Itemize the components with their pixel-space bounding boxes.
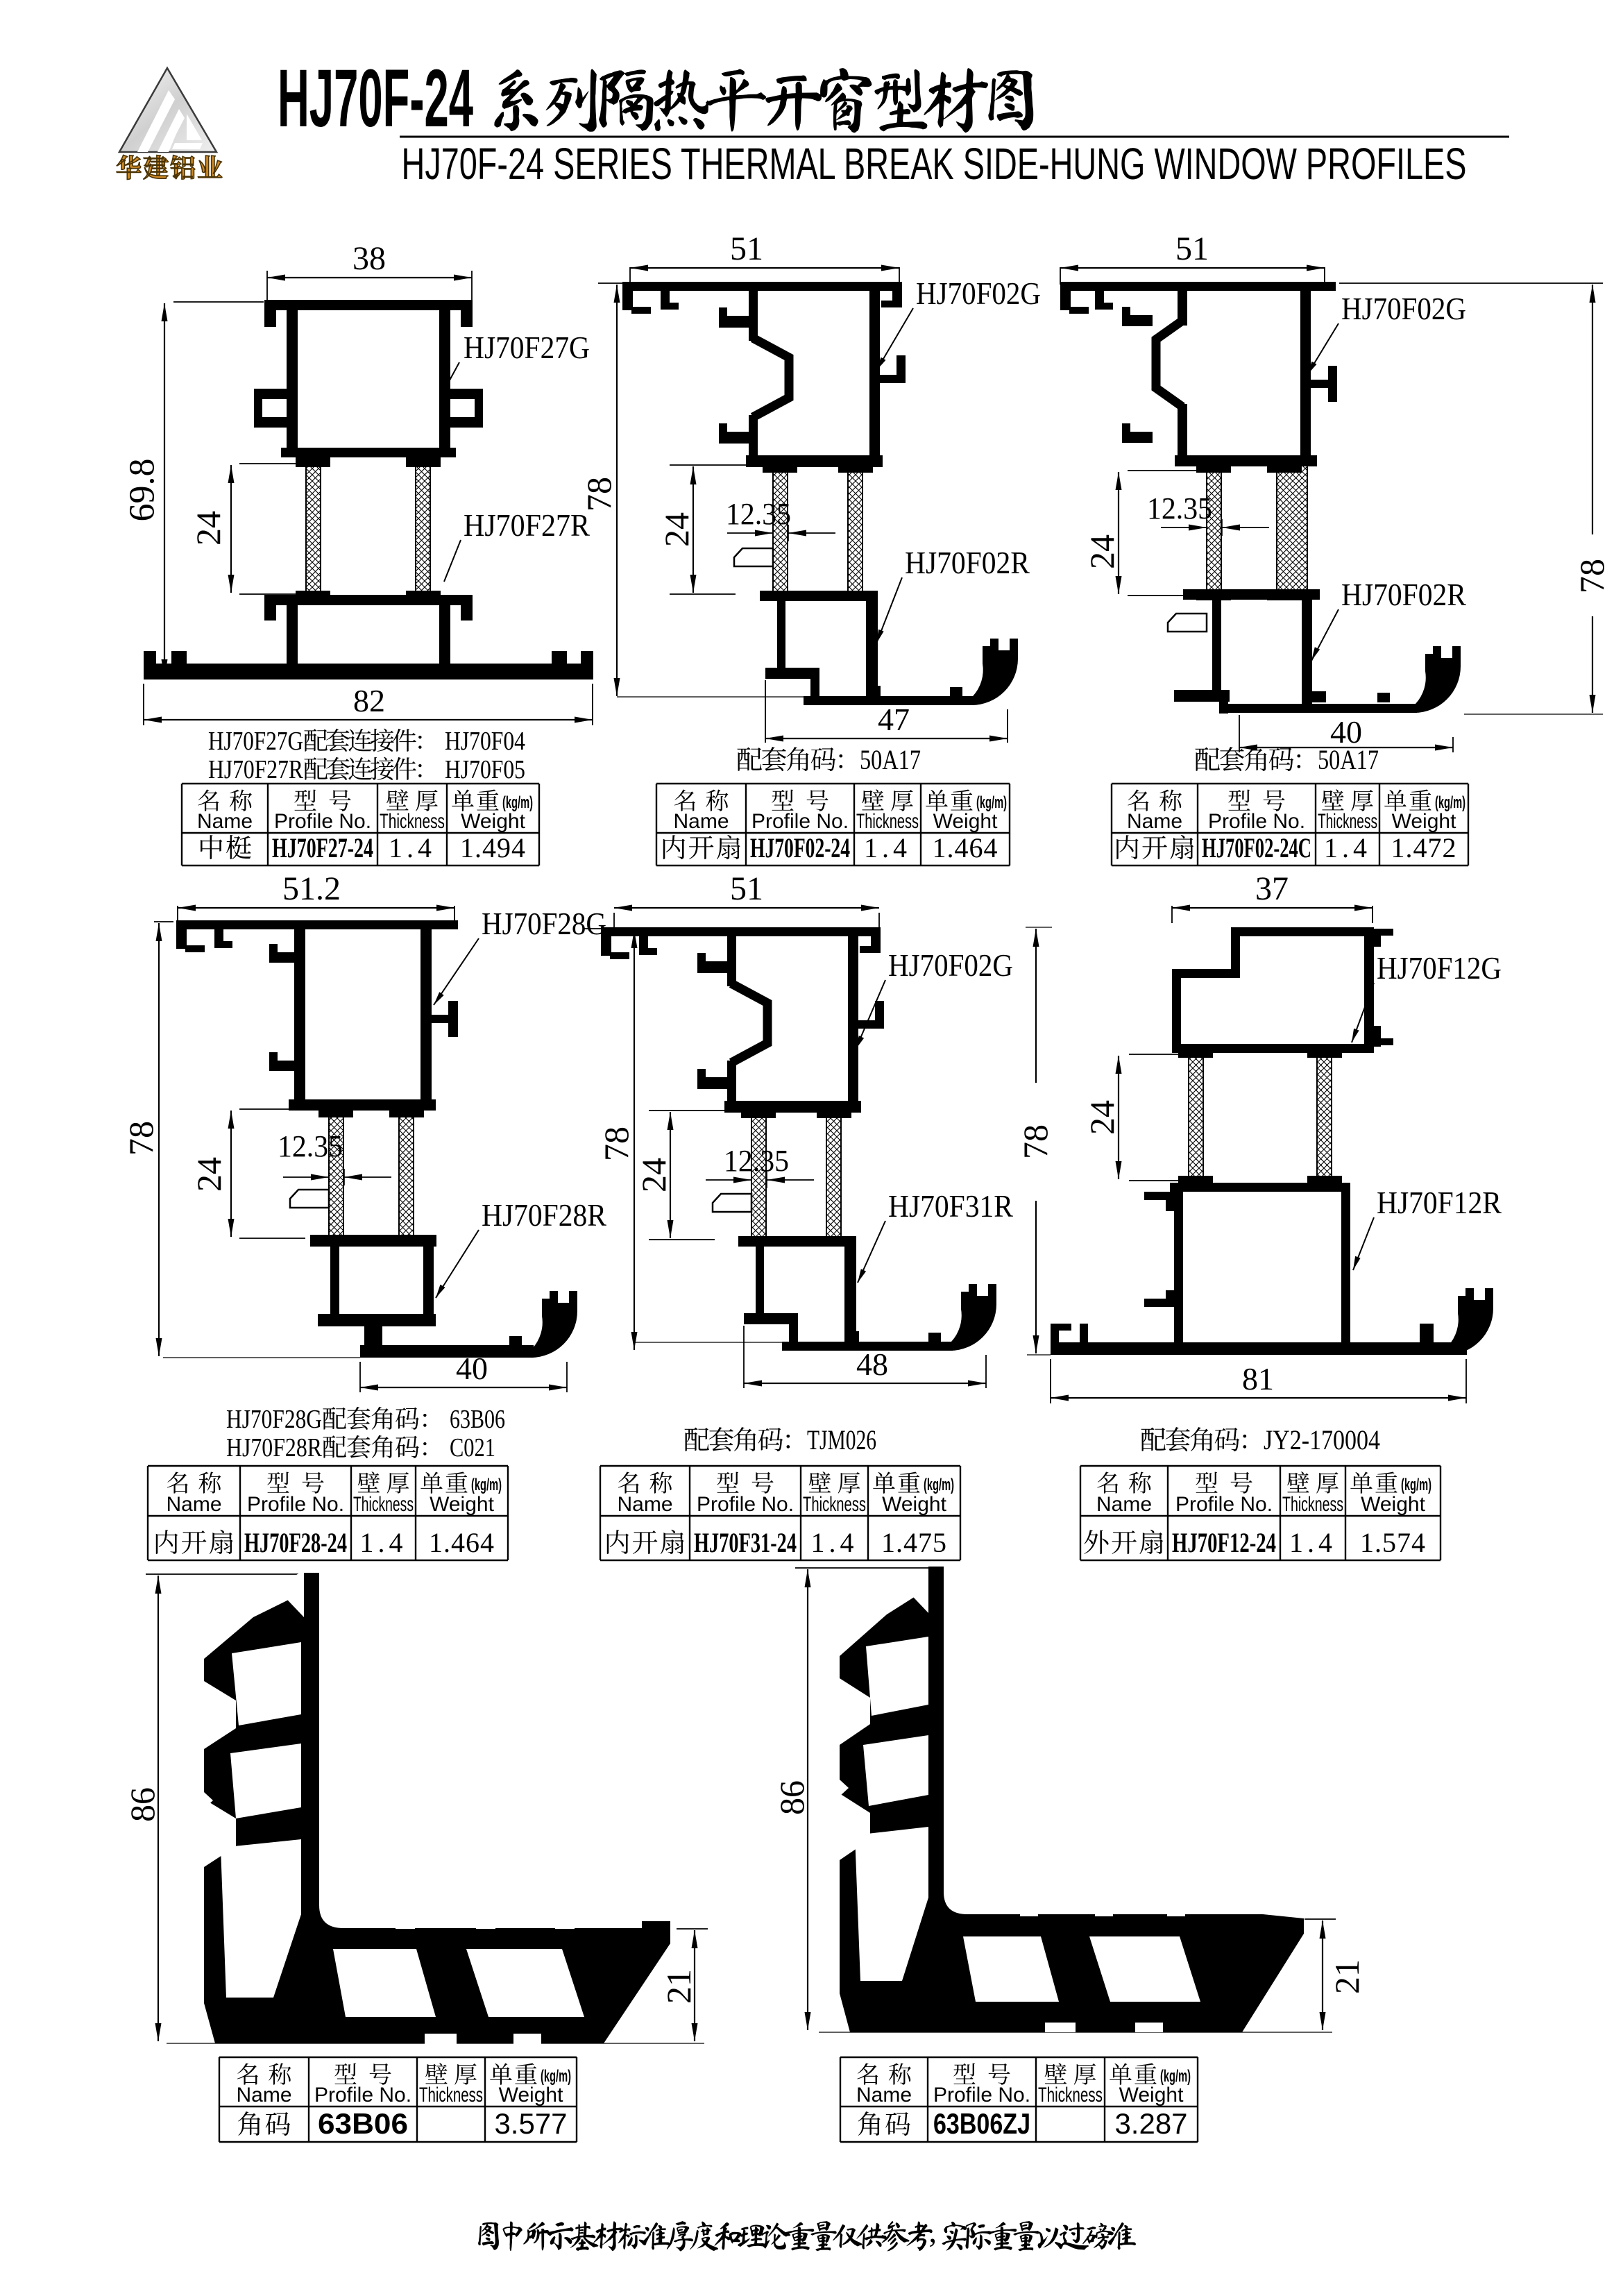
svg-text:HJ70F04: HJ70F04 [445, 727, 525, 756]
svg-text:Profile No.: Profile No. [751, 810, 849, 833]
svg-text:HJ70F12G: HJ70F12G [1377, 950, 1502, 986]
svg-text:82: 82 [353, 683, 385, 718]
svg-text:(kg/m): (kg/m) [976, 793, 1007, 812]
svg-text:Thickness: Thickness [1282, 1493, 1343, 1516]
svg-text:24: 24 [657, 512, 696, 547]
svg-text:(kg/m): (kg/m) [1160, 2067, 1191, 2086]
svg-text:Profile No.: Profile No. [247, 1493, 344, 1516]
svg-text:TJM026: TJM026 [807, 1424, 876, 1455]
svg-text:Name: Name [236, 2084, 291, 2107]
svg-text:Thickness: Thickness [419, 2084, 483, 2107]
svg-text:78: 78 [579, 477, 618, 512]
svg-text:1.464: 1.464 [429, 1527, 495, 1558]
svg-text:HJ70F02-24C: HJ70F02-24C [1202, 832, 1311, 863]
svg-text:1.4: 1.4 [1289, 1527, 1336, 1558]
svg-text:Profile No.: Profile No. [697, 1493, 794, 1516]
svg-text:Weight: Weight [461, 810, 525, 833]
svg-text:78: 78 [597, 1126, 636, 1161]
svg-text:HJ70F27G: HJ70F27G [208, 727, 303, 756]
svg-text:Weight: Weight [1119, 2084, 1184, 2107]
svg-text:,: , [929, 2213, 937, 2249]
svg-text:1.574: 1.574 [1360, 1527, 1426, 1558]
svg-text:Profile No.: Profile No. [314, 2084, 411, 2107]
svg-text:HJ70F27-24: HJ70F27-24 [272, 832, 373, 863]
svg-text:21: 21 [1327, 1959, 1366, 1994]
svg-text:24: 24 [1082, 1100, 1121, 1135]
svg-text:Weight: Weight [882, 1493, 946, 1516]
svg-text:HJ70F02G: HJ70F02G [916, 276, 1041, 311]
svg-text:38: 38 [352, 240, 386, 277]
svg-text:63B06: 63B06 [450, 1405, 505, 1434]
svg-text:1.472: 1.472 [1391, 832, 1457, 863]
svg-text:Weight: Weight [933, 810, 998, 833]
svg-text:JY2-170004: JY2-170004 [1264, 1424, 1380, 1455]
svg-text:51: 51 [730, 230, 763, 267]
svg-text:24: 24 [189, 511, 228, 546]
svg-text:3.577: 3.577 [494, 2107, 567, 2140]
svg-text:63B06: 63B06 [318, 2107, 408, 2140]
svg-text:C021: C021 [450, 1433, 495, 1462]
svg-text:HJ70F02G: HJ70F02G [1341, 291, 1466, 326]
svg-text:86: 86 [123, 1787, 162, 1822]
svg-text:Weight: Weight [1392, 810, 1456, 833]
svg-text:Thickness: Thickness [856, 810, 919, 833]
svg-text:78: 78 [121, 1121, 160, 1156]
svg-text:Profile No.: Profile No. [274, 810, 371, 833]
svg-text:HJ70F02R: HJ70F02R [905, 545, 1030, 580]
svg-text:40: 40 [456, 1351, 488, 1386]
svg-text:1.475: 1.475 [881, 1527, 947, 1558]
svg-text:51: 51 [1175, 230, 1209, 267]
svg-text:(kg/m): (kg/m) [1401, 1476, 1431, 1494]
svg-text:24: 24 [634, 1158, 673, 1192]
svg-text:HJ70F27R: HJ70F27R [208, 755, 304, 784]
svg-text:1.4: 1.4 [360, 1527, 407, 1558]
svg-text:51.2: 51.2 [282, 870, 341, 907]
svg-text:48: 48 [856, 1347, 888, 1382]
svg-text:(kg/m): (kg/m) [502, 793, 533, 812]
svg-text:21: 21 [659, 1969, 698, 2004]
svg-text:1.494: 1.494 [460, 832, 526, 863]
svg-text:Thickness: Thickness [1038, 2084, 1103, 2107]
svg-text:HJ70F27G: HJ70F27G [464, 330, 590, 365]
svg-text:24: 24 [1082, 534, 1121, 569]
svg-text:HJ70F28G: HJ70F28G [226, 1405, 322, 1434]
svg-text:Profile No.: Profile No. [1208, 810, 1305, 833]
svg-text:78: 78 [1572, 559, 1611, 593]
svg-text:47: 47 [878, 702, 910, 737]
svg-text:81: 81 [1242, 1361, 1274, 1396]
svg-text:Name: Name [617, 1493, 672, 1516]
svg-text:(kg/m): (kg/m) [541, 2067, 571, 2086]
svg-text:HJ70F02R: HJ70F02R [1341, 577, 1466, 612]
svg-text:HJ70F28R: HJ70F28R [482, 1197, 606, 1233]
svg-text:Profile No.: Profile No. [1175, 1493, 1273, 1516]
svg-text:50A17: 50A17 [860, 744, 921, 775]
svg-text:(kg/m): (kg/m) [1435, 793, 1465, 812]
svg-text:HJ70F02-24: HJ70F02-24 [750, 832, 850, 863]
svg-text:63B06ZJ: 63B06ZJ [933, 2107, 1030, 2140]
svg-text:HJ70F12-24: HJ70F12-24 [1172, 1527, 1276, 1558]
svg-text:HJ70F12R: HJ70F12R [1377, 1185, 1502, 1220]
svg-text:86: 86 [772, 1780, 811, 1815]
svg-text:69.8: 69.8 [123, 459, 162, 522]
svg-text:1.4: 1.4 [811, 1527, 858, 1558]
svg-text:Thickness: Thickness [353, 1493, 414, 1516]
svg-text:Name: Name [197, 810, 253, 833]
svg-text:1.4: 1.4 [1324, 832, 1371, 863]
svg-text:Name: Name [856, 2084, 912, 2107]
svg-text:1.4: 1.4 [864, 832, 911, 863]
svg-text:HJ70F05: HJ70F05 [445, 755, 525, 784]
svg-text:12.35: 12.35 [1147, 491, 1212, 525]
svg-text:Weight: Weight [499, 2084, 563, 2107]
svg-text:Thickness: Thickness [380, 810, 445, 833]
svg-text:1.464: 1.464 [933, 832, 999, 863]
svg-text:Profile No.: Profile No. [933, 2084, 1030, 2107]
svg-text:(kg/m): (kg/m) [471, 1476, 502, 1494]
svg-text:HJ70F-24 SERIES THERMAL BREA: HJ70F-24 SERIES THERMAL BREAK SIDE-HUNG … [402, 139, 1467, 189]
svg-text:Name: Name [1096, 1493, 1152, 1516]
svg-text:HJ70F27R: HJ70F27R [464, 507, 590, 543]
svg-text:HJ70F-24: HJ70F-24 [278, 53, 473, 144]
svg-text:24: 24 [189, 1157, 228, 1192]
svg-text:HJ70F28G: HJ70F28G [482, 906, 606, 941]
svg-text:HJ70F28R: HJ70F28R [226, 1433, 323, 1462]
svg-text:78: 78 [1016, 1124, 1055, 1159]
svg-text:Weight: Weight [430, 1493, 494, 1516]
svg-text:Thickness: Thickness [1318, 810, 1377, 833]
svg-text:Name: Name [166, 1493, 221, 1516]
svg-text:HJ70F02G: HJ70F02G [888, 947, 1013, 983]
svg-text:HJ70F31-24: HJ70F31-24 [694, 1527, 797, 1558]
svg-text:Name: Name [673, 810, 729, 833]
svg-text:Name: Name [1127, 810, 1182, 833]
svg-text:Thickness: Thickness [803, 1493, 866, 1516]
svg-text:HJ70F31R: HJ70F31R [888, 1188, 1013, 1224]
svg-text:(kg/m): (kg/m) [924, 1476, 954, 1494]
svg-text:50A17: 50A17 [1318, 744, 1379, 775]
svg-text:3.287: 3.287 [1114, 2107, 1187, 2140]
svg-text:1.4: 1.4 [389, 832, 436, 863]
svg-text:51: 51 [730, 870, 763, 907]
svg-text:37: 37 [1255, 870, 1289, 907]
svg-text:HJ70F28-24: HJ70F28-24 [244, 1527, 347, 1558]
svg-text:Weight: Weight [1361, 1493, 1425, 1516]
